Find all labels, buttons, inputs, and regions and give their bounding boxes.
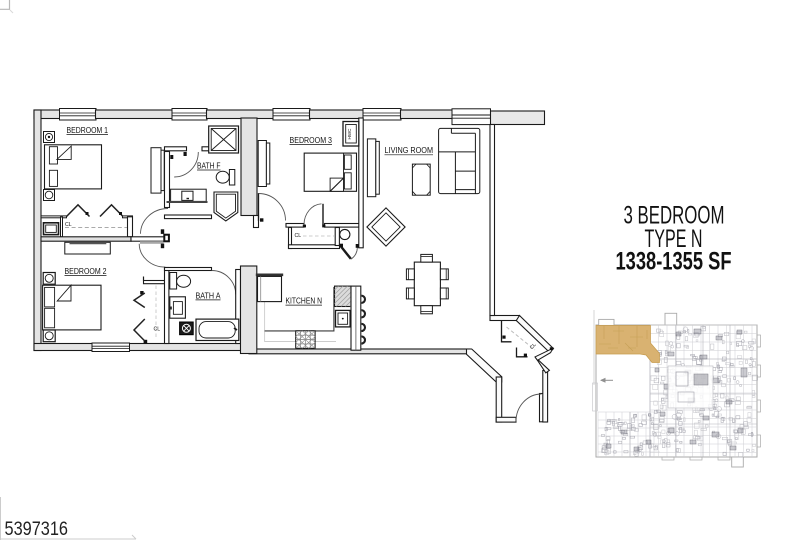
- svg-text:LIVING ROOM: LIVING ROOM: [385, 146, 434, 155]
- svg-text:HWC: HWC: [347, 128, 352, 140]
- svg-text:BEDROOM 1: BEDROOM 1: [67, 126, 109, 135]
- svg-text:BEDROOM 3: BEDROOM 3: [290, 136, 333, 145]
- svg-text:CL: CL: [154, 327, 161, 333]
- svg-text:CL: CL: [65, 222, 72, 228]
- svg-text:BATH F: BATH F: [197, 162, 221, 171]
- svg-text:CL: CL: [295, 233, 302, 239]
- svg-text:KITCHEN N: KITCHEN N: [286, 297, 323, 306]
- svg-text:BEDROOM 2: BEDROOM 2: [65, 267, 107, 276]
- svg-text:1338-1355 SF: 1338-1355 SF: [616, 248, 732, 276]
- svg-text:5397316: 5397316: [5, 519, 69, 540]
- svg-text:BATH A: BATH A: [196, 291, 222, 300]
